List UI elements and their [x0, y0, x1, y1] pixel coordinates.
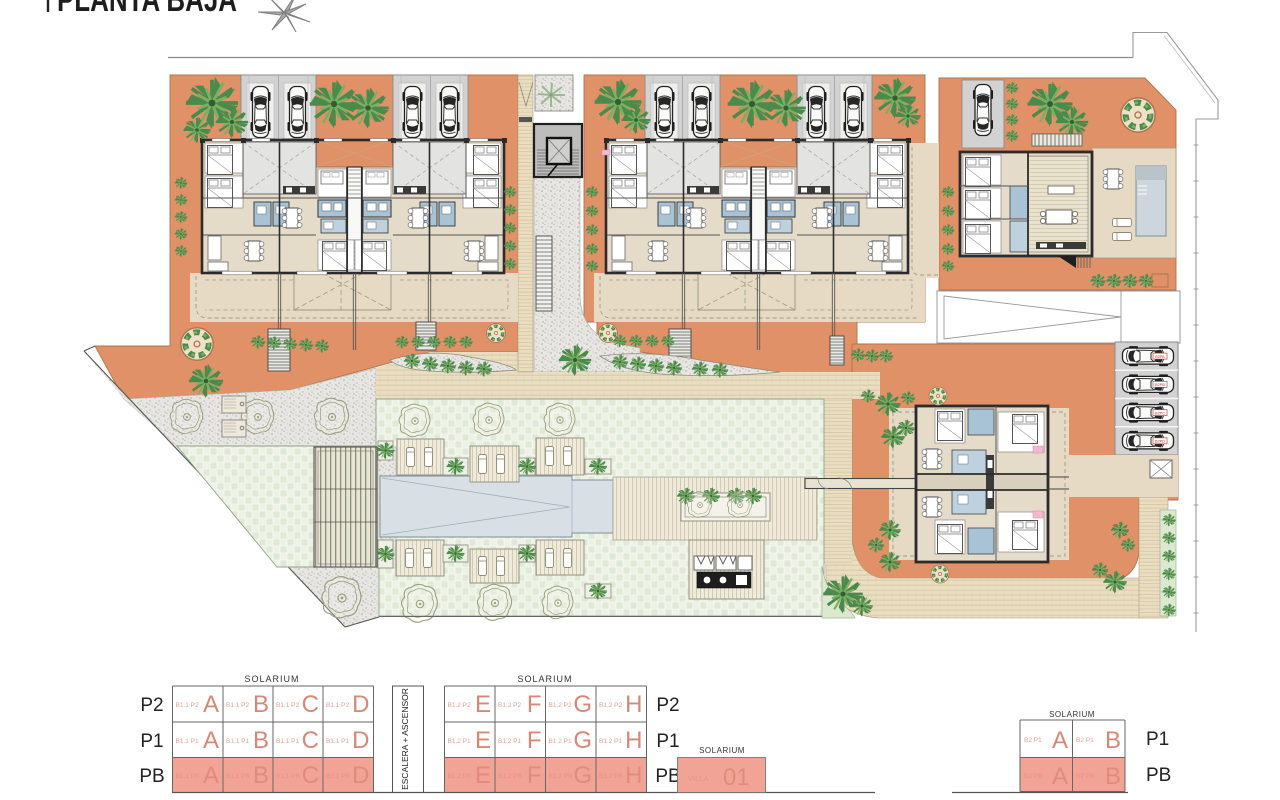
svg-text:B: B — [253, 691, 269, 718]
svg-text:B2PC: B2PC — [1155, 411, 1165, 415]
svg-text:E: E — [475, 762, 491, 789]
svg-text:B2PB: B2PB — [1155, 383, 1165, 387]
svg-text:B1.1 PB: B1.1 PB — [326, 773, 350, 780]
svg-text:E: E — [475, 727, 491, 754]
svg-text:C: C — [302, 727, 319, 754]
svg-text:B1.2 P1: B1.2 P1 — [549, 738, 573, 745]
svg-text:D: D — [352, 762, 369, 789]
svg-text:B: B — [1105, 727, 1121, 754]
svg-text:D: D — [352, 691, 369, 718]
svg-text:A: A — [203, 727, 219, 754]
svg-text:P1: P1 — [140, 731, 163, 752]
svg-text:C: C — [302, 691, 319, 718]
svg-text:B1.1 P1: B1.1 P1 — [276, 738, 300, 745]
svg-text:H: H — [625, 762, 642, 789]
svg-text:B1.1 P1: B1.1 P1 — [176, 738, 200, 745]
svg-text:B1.2 P2: B1.2 P2 — [448, 702, 472, 709]
svg-text:P1: P1 — [1146, 729, 1169, 750]
svg-text:B1.1 P1: B1.1 P1 — [326, 738, 350, 745]
svg-text:H: H — [625, 691, 642, 718]
svg-text:VILLA: VILLA — [688, 774, 708, 783]
svg-text:SOLARIUM: SOLARIUM — [244, 674, 299, 684]
svg-text:B: B — [253, 762, 269, 789]
svg-text:SOLARIUM: SOLARIUM — [1049, 710, 1095, 719]
svg-text:PB: PB — [1146, 765, 1171, 786]
svg-text:G: G — [573, 691, 592, 718]
svg-text:B1.2 PB: B1.2 PB — [549, 773, 573, 780]
svg-text:B2 PB: B2 PB — [1076, 773, 1094, 780]
svg-text:B: B — [253, 727, 269, 754]
svg-text:F: F — [527, 762, 542, 789]
svg-text:B2PD: B2PD — [1155, 440, 1165, 444]
svg-text:B1.1 P1: B1.1 P1 — [226, 738, 250, 745]
svg-text:B1.2 PB: B1.2 PB — [448, 773, 472, 780]
svg-text:H: H — [625, 727, 642, 754]
svg-text:B1.1 P2: B1.1 P2 — [276, 702, 300, 709]
svg-text:G: G — [573, 762, 592, 789]
svg-text:B1.2 P2: B1.2 P2 — [498, 702, 522, 709]
svg-text:B1.1 PB: B1.1 PB — [176, 773, 200, 780]
svg-text:B: B — [1105, 763, 1121, 790]
svg-text:B1.2 P1: B1.2 P1 — [448, 738, 472, 745]
svg-text:B2 P1: B2 P1 — [1024, 737, 1042, 744]
svg-text:PB: PB — [139, 766, 164, 787]
svg-text:A: A — [203, 691, 219, 718]
svg-text:D: D — [352, 727, 369, 754]
svg-text:ESCALERA + ASCENSOR: ESCALERA + ASCENSOR — [400, 688, 410, 790]
svg-text:B1.1 PB: B1.1 PB — [226, 773, 250, 780]
svg-text:B1.1 P2: B1.1 P2 — [176, 702, 200, 709]
svg-text:P2: P2 — [656, 695, 679, 716]
svg-text:B1.1 P2: B1.1 P2 — [226, 702, 250, 709]
svg-text:B1.2 P1: B1.2 P1 — [498, 738, 522, 745]
svg-text:E: E — [475, 691, 491, 718]
svg-text:B2PA: B2PA — [1155, 355, 1165, 359]
svg-text:SOLARIUM: SOLARIUM — [699, 746, 745, 755]
svg-text:01: 01 — [723, 764, 750, 791]
svg-text:F: F — [527, 691, 542, 718]
svg-text:PB: PB — [655, 766, 680, 787]
svg-text:P2: P2 — [140, 695, 163, 716]
svg-text:G: G — [573, 727, 592, 754]
svg-text:B2 PB: B2 PB — [1024, 773, 1042, 780]
svg-text:SOLARIUM: SOLARIUM — [517, 674, 572, 684]
svg-text:F: F — [527, 727, 542, 754]
svg-text:B1.2 P2: B1.2 P2 — [549, 702, 573, 709]
svg-text:A: A — [1052, 727, 1068, 754]
svg-text:PLANTA BAJA: PLANTA BAJA — [57, 0, 237, 19]
svg-text:B1.2 PB: B1.2 PB — [599, 773, 623, 780]
svg-text:B1.1 P2: B1.1 P2 — [326, 702, 350, 709]
svg-text:A: A — [203, 762, 219, 789]
svg-text:P1: P1 — [656, 731, 679, 752]
svg-text:C: C — [302, 762, 319, 789]
svg-text:B1.1 PB: B1.1 PB — [276, 773, 300, 780]
svg-text:B1.2 PB: B1.2 PB — [498, 773, 522, 780]
svg-text:B1.2 P2: B1.2 P2 — [599, 702, 623, 709]
svg-text:B1.2 P1: B1.2 P1 — [599, 738, 623, 745]
svg-text:A: A — [1052, 763, 1068, 790]
svg-text:B2 P1: B2 P1 — [1076, 737, 1094, 744]
